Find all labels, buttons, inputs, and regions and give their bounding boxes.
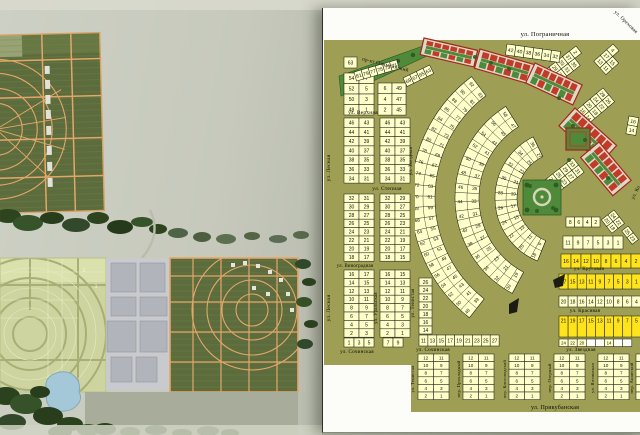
site-bottom xyxy=(0,250,318,435)
plot-cell xyxy=(636,354,640,362)
plot-number: 17 xyxy=(579,319,585,325)
plot-strip: 1715131197531 xyxy=(559,274,640,289)
plot-number: 7 xyxy=(620,371,623,376)
plot-number: 19 xyxy=(364,246,370,252)
plot-number: 11 xyxy=(588,279,593,285)
plot-cell xyxy=(614,339,623,347)
plot-number: 46 xyxy=(349,120,355,126)
plot-block: 121110987654321 xyxy=(598,354,629,400)
tree-icon xyxy=(528,184,532,188)
plot-number: 27 xyxy=(492,338,498,344)
plot-number: 8 xyxy=(617,299,620,305)
plot-number: 24 xyxy=(385,230,391,236)
plot-number: 25 xyxy=(483,338,489,344)
plot-number: 5 xyxy=(485,378,488,383)
plot-number: 4 xyxy=(384,97,387,103)
plot-number: 2 xyxy=(515,393,518,398)
street-label: ул. Ореховая xyxy=(613,9,639,35)
plot-number: 35 xyxy=(400,158,406,164)
plot-number: 28 xyxy=(385,213,391,219)
plot-number: 32 xyxy=(385,196,391,202)
plot-number: 5 xyxy=(440,378,443,383)
plot-number: 13 xyxy=(400,280,406,286)
tree-icon xyxy=(606,176,610,180)
plot-number: 3 xyxy=(365,331,368,337)
plot-number: 16 xyxy=(349,272,355,278)
plot-number: 30 xyxy=(349,204,355,210)
plot-block: 161714151213101189674523 xyxy=(344,270,374,337)
plot-strip: 1197531 xyxy=(563,236,623,249)
zone-green xyxy=(170,250,312,392)
plot-number: 10 xyxy=(593,259,599,265)
plot-number: 6 xyxy=(577,220,580,226)
street-label: пер. Анапский xyxy=(629,362,634,393)
plot-number: 17 xyxy=(400,246,406,252)
plot-number: 31 xyxy=(400,176,406,182)
street-label: ул. Тенистая xyxy=(410,365,415,393)
plot-number: 7 xyxy=(401,306,404,312)
plot-number: 23 xyxy=(400,221,406,227)
plot-number: 11 xyxy=(606,319,611,325)
plot-number: 17 xyxy=(364,272,370,278)
plot-number: 14 xyxy=(423,328,429,334)
plot-number: 7 xyxy=(576,371,579,376)
plot-number: 9 xyxy=(397,340,400,346)
plot-number: 8 xyxy=(469,371,472,376)
plot-number: 11 xyxy=(439,355,444,360)
plot-number: 4 xyxy=(560,386,563,391)
plot-strip: 111315171921232527 xyxy=(419,335,499,346)
plot-block: 32313029282726252423222120191817 xyxy=(344,194,374,261)
plot-number: 12 xyxy=(468,355,474,360)
plot-number: 22 xyxy=(570,340,575,345)
plot-number: 6 xyxy=(469,378,472,383)
plot-number: 11 xyxy=(484,355,489,360)
plot-number: 20 xyxy=(579,340,584,345)
plot-block: 63 xyxy=(344,57,357,68)
tree-icon xyxy=(554,183,559,188)
plot-number: 7 xyxy=(626,319,629,325)
plot-number: 11 xyxy=(364,297,369,303)
plot-number: 6 xyxy=(350,314,353,320)
plot-number: 4 xyxy=(625,259,628,265)
plot-number: 35 xyxy=(472,186,478,192)
plot-number: 6 xyxy=(560,378,563,383)
plot-cell xyxy=(636,362,640,370)
plot-number: 23 xyxy=(364,230,370,236)
plot-number: 5 xyxy=(401,314,404,320)
plot-number: 63 xyxy=(348,60,354,66)
plot-number: 32 xyxy=(552,54,559,61)
tree-icon xyxy=(489,61,493,65)
plot-number: 46 xyxy=(458,184,464,190)
plot-number: 9 xyxy=(620,363,623,368)
plot-number: 4 xyxy=(515,386,518,391)
plot-number: 10 xyxy=(559,363,565,368)
plot-number: 3 xyxy=(576,386,579,391)
plot-number: 19 xyxy=(511,191,517,196)
street-label: пер. Кисловодский xyxy=(502,359,507,398)
plot-number: 32 xyxy=(349,196,355,202)
plot-number: 12 xyxy=(349,289,355,295)
plot-number: 21 xyxy=(364,238,370,244)
tree-icon xyxy=(507,67,511,71)
plot-number: 16 xyxy=(385,272,391,278)
plot-number: 22 xyxy=(385,238,391,244)
plot-number: 7 xyxy=(440,371,443,376)
plot-number: 10 xyxy=(603,363,609,368)
plot-number: 47 xyxy=(396,97,402,103)
plot-number: 1 xyxy=(635,279,638,285)
plot-number: 33 xyxy=(471,199,477,204)
plot-number: 31 xyxy=(364,176,370,182)
plot-number: 19 xyxy=(570,319,576,325)
plot-number: 12 xyxy=(514,355,520,360)
plot-number: 44 xyxy=(385,130,391,136)
plot-number: 18 xyxy=(423,312,429,318)
plot-number: 13 xyxy=(579,279,585,285)
plot-number: 6 xyxy=(515,378,518,383)
plot-number: 10 xyxy=(423,363,429,368)
plot-number: 21 xyxy=(561,319,567,325)
plot-number: 7 xyxy=(608,279,611,285)
plot-number: 10 xyxy=(349,297,355,303)
cadastral-plan-map: 9290888684828078767472706866646260585654… xyxy=(323,8,640,432)
plot-number: 8 xyxy=(424,371,427,376)
plot-number: 7 xyxy=(387,340,390,346)
plot-number: 14 xyxy=(573,259,579,265)
plot-number: 34 xyxy=(349,176,355,182)
plot-block: 121110987654321 xyxy=(418,354,449,400)
site-top-left xyxy=(0,33,104,216)
plot-number: 38 xyxy=(349,158,355,164)
plot-number: 37 xyxy=(364,148,370,154)
plot-block: 4643444142394037383536333431 xyxy=(380,118,410,183)
plot-number: 13 xyxy=(430,338,436,344)
plot-number: 15 xyxy=(400,255,406,261)
plot-block: 26242220181614 xyxy=(419,278,432,334)
street-label: ул. Сочинская xyxy=(340,349,374,355)
street-label: ул. Тенистая xyxy=(411,288,416,318)
plot-block: 4643444142394037383536333431 xyxy=(344,118,374,183)
plot-number: 35 xyxy=(364,158,370,164)
plot-number: 9 xyxy=(617,319,620,325)
screenshot-root: 21 9290888684828078767472706866646260585… xyxy=(0,0,640,435)
plot-number: 37 xyxy=(400,148,406,154)
tree-icon xyxy=(583,138,587,142)
plot-number: 4 xyxy=(350,322,353,328)
plot-number: 43 xyxy=(400,120,406,126)
plot-number: 36 xyxy=(349,167,355,173)
plot-number: 3 xyxy=(485,386,488,391)
plot-number: 9 xyxy=(365,306,368,312)
plot-number: 33 xyxy=(400,167,406,173)
plot-number: 36 xyxy=(534,51,541,58)
plot-number: 3 xyxy=(401,322,404,328)
street-label: ул. Лесная xyxy=(326,154,332,181)
plot-number: 2 xyxy=(424,393,427,398)
plot-number: 5 xyxy=(365,322,368,328)
plot-number: 44 xyxy=(457,199,463,204)
plot-number: 8 xyxy=(569,220,572,226)
plot-number: 10 xyxy=(514,363,520,368)
plot-number: 8 xyxy=(515,371,518,376)
plot-number: 61 xyxy=(427,194,433,199)
plot-number: 42 xyxy=(349,139,355,145)
plot-number: 5 xyxy=(635,319,638,325)
field xyxy=(85,392,298,435)
tree-icon xyxy=(557,96,561,100)
plot-number: 40 xyxy=(385,148,391,154)
plot-number: 15 xyxy=(400,272,406,278)
plot-number: 8 xyxy=(560,371,563,376)
plot-cell xyxy=(636,384,640,392)
plot-number: 13 xyxy=(364,289,370,295)
tree-icon xyxy=(525,208,530,213)
street-label: ул. Круговая xyxy=(574,266,605,272)
plot-number: 2 xyxy=(594,220,597,226)
plot-number: 9 xyxy=(576,363,579,368)
plot-number: 4 xyxy=(586,220,589,226)
plot-number: 5 xyxy=(620,378,623,383)
tree-icon xyxy=(567,158,571,162)
plot-number: 38 xyxy=(525,50,532,57)
plot-number: 10 xyxy=(606,299,612,305)
plot-number: 11 xyxy=(400,289,405,295)
plot-number: 36 xyxy=(385,167,391,173)
plot-number: 1 xyxy=(440,393,443,398)
plot-number: 26 xyxy=(385,221,391,227)
plot-block: 121110987654321 xyxy=(636,354,640,400)
plot-number: 34 xyxy=(385,176,391,182)
plot-number: 50 xyxy=(349,97,355,103)
plot-number: 10 xyxy=(468,363,474,368)
plot-number: 46 xyxy=(385,120,391,126)
plot-number: 4 xyxy=(635,299,638,305)
plot-number: 9 xyxy=(440,363,443,368)
plot-number: 15 xyxy=(570,279,576,285)
plot-number: 25 xyxy=(400,213,406,219)
street-label: ул. Лесная xyxy=(326,294,332,321)
plot-number: 14 xyxy=(385,280,391,286)
plot-number: 41 xyxy=(400,130,406,136)
plot-number: 12 xyxy=(583,259,589,265)
street-label: пер. Прохладный xyxy=(456,360,461,397)
street-label: пер. Озерный xyxy=(547,363,552,392)
plot-number: 11 xyxy=(619,355,624,360)
plot-number: 5 xyxy=(617,279,620,285)
plot-strip: 24222014 xyxy=(559,339,632,347)
plot-number: 13 xyxy=(597,319,603,325)
street-label: ул. Уральская xyxy=(374,292,379,324)
plot-cell xyxy=(623,339,632,347)
street-label: ул. Верхняя xyxy=(348,110,378,116)
plot-number: 63 xyxy=(428,184,434,189)
plot-number: 17 xyxy=(447,338,453,344)
plot-number: 29 xyxy=(364,204,370,210)
plot-number: 52 xyxy=(349,87,355,93)
plot-number: 9 xyxy=(485,363,488,368)
plot-number: 9 xyxy=(577,240,580,246)
street-label: ул. Степная xyxy=(372,186,402,192)
plot-number: 1 xyxy=(401,331,404,337)
street-label: ул. Пограничная xyxy=(521,31,570,38)
tree-icon xyxy=(411,53,415,57)
plot-number: 43 xyxy=(364,120,370,126)
plot-number: 8 xyxy=(386,306,389,312)
plot-number: 3 xyxy=(626,279,629,285)
plan-page: 9290888684828078767472706866646260585654… xyxy=(322,8,640,433)
plot-number: 12 xyxy=(423,355,429,360)
plot-number: 1 xyxy=(576,393,579,398)
plot-number: 5 xyxy=(365,87,368,93)
plot-number: 14 xyxy=(607,340,612,345)
plot-number: 4 xyxy=(386,322,389,328)
plot-number: 18 xyxy=(570,299,576,305)
plot-number: 5 xyxy=(368,340,371,346)
plot-cell xyxy=(636,377,640,385)
plot-strip: 79 xyxy=(383,338,403,347)
plot-strip: 135 xyxy=(344,338,374,347)
plot-number: 7 xyxy=(587,240,590,246)
plot-number: 19 xyxy=(456,338,462,344)
plot-number: 3 xyxy=(365,97,368,103)
plot-number: 1 xyxy=(531,393,534,398)
plot-number: 2 xyxy=(635,259,638,265)
plot-number: 6 xyxy=(384,86,387,92)
plot-number: 1 xyxy=(348,340,351,346)
plot-number: 24 xyxy=(561,340,566,345)
zone-gray xyxy=(106,258,170,390)
plot-number: 18 xyxy=(349,255,355,261)
plot-number: 1 xyxy=(620,393,623,398)
plot-number: 40 xyxy=(349,148,355,154)
plot-number: 8 xyxy=(350,306,353,312)
street-label: ул. Виноградная xyxy=(337,264,374,269)
plot-number: 7 xyxy=(365,314,368,320)
plot-number: 1 xyxy=(617,240,620,246)
plot-number: 39 xyxy=(364,139,370,145)
plot-cell xyxy=(595,339,604,347)
plot-number: 3 xyxy=(620,386,623,391)
plot-number: 16 xyxy=(579,299,585,305)
plot-number: 42 xyxy=(507,48,514,55)
plot-number: 44 xyxy=(349,130,355,136)
plot-number: 1 xyxy=(485,393,488,398)
plot-number: 2 xyxy=(384,108,387,114)
plot-number: 17 xyxy=(364,255,370,261)
plot-block: 121110987654321 xyxy=(463,354,494,400)
plot-number: 33 xyxy=(364,167,370,173)
plot-number: 6 xyxy=(424,378,427,383)
plot-cell xyxy=(636,369,640,377)
plot-number: 4 xyxy=(469,386,472,391)
plot-number: 21 xyxy=(400,230,406,236)
plot-number: 49 xyxy=(396,86,402,92)
plot-block: 32293027282526232421221920171815 xyxy=(380,194,410,261)
tree-icon xyxy=(535,209,539,213)
plot-number: 12 xyxy=(603,355,609,360)
street-label: ул. Красивая xyxy=(570,308,601,314)
plot-number: 34 xyxy=(543,53,550,60)
street-label: ул. Ялтинская xyxy=(590,362,595,393)
plot-number: 19 xyxy=(400,238,406,244)
plot-number: 42 xyxy=(385,139,391,145)
plot-number: 14 xyxy=(588,299,594,305)
plot-number: 30 xyxy=(385,204,391,210)
plot-number: 8 xyxy=(605,259,608,265)
plot-number: 12 xyxy=(559,355,565,360)
plot-number: 9 xyxy=(401,297,404,303)
plot-number: 29 xyxy=(400,196,406,202)
plot-number: 6 xyxy=(604,378,607,383)
plot-number: 21 xyxy=(465,338,471,344)
plot-block: 121110987654321 xyxy=(554,354,585,400)
plot-number: 22 xyxy=(349,238,355,244)
plot-block: 121110987654321 xyxy=(509,354,540,400)
plot-number: 28 xyxy=(349,213,355,219)
tree-icon xyxy=(571,124,575,128)
plot-number: 15 xyxy=(588,319,594,325)
plot-number: 15 xyxy=(438,338,444,344)
plot-number: 11 xyxy=(565,240,570,246)
plot-number: 23 xyxy=(474,338,480,344)
plot-number: 26 xyxy=(349,221,355,227)
plot-number: 5 xyxy=(531,378,534,383)
plot-block: 16151413121110987654321 xyxy=(380,270,410,337)
plot-number: 18 xyxy=(385,255,391,261)
plot-number: 5 xyxy=(597,240,600,246)
plot-number: 41 xyxy=(364,130,370,136)
plot-number: 3 xyxy=(531,386,534,391)
plot-number: 12 xyxy=(385,289,391,295)
plot-number: 15 xyxy=(364,280,370,286)
plot-number: 2 xyxy=(386,331,389,337)
plot-number: 6 xyxy=(626,299,629,305)
plot-number: 3 xyxy=(358,340,361,346)
plot-number: 14 xyxy=(349,280,355,286)
plot-cell xyxy=(636,392,640,400)
plot-number: 59 xyxy=(427,205,433,210)
plot-number: 9 xyxy=(599,279,602,285)
plot-number: 5 xyxy=(576,378,579,383)
plot-number: 4 xyxy=(424,386,427,391)
street-label: ул. Сочинская xyxy=(416,347,450,353)
plot-number: 4 xyxy=(604,386,607,391)
street-label: ул. Прикубанская xyxy=(531,404,579,411)
plot-number: 11 xyxy=(530,355,535,360)
plot-number: 11 xyxy=(421,338,426,344)
plot-number: 3 xyxy=(607,240,610,246)
plot-strip: 201816141210864 xyxy=(559,296,640,307)
pond xyxy=(46,372,81,412)
plot-number: 11 xyxy=(575,355,580,360)
plot-cell xyxy=(586,339,595,347)
street-label: ул. Звездная xyxy=(566,347,596,353)
tree-icon xyxy=(473,55,477,59)
plot-number: 2 xyxy=(469,393,472,398)
plot-number: 3 xyxy=(440,386,443,391)
plot-number: 27 xyxy=(364,213,370,219)
plot-number: 54 xyxy=(349,76,355,82)
plot-strip: 8642 xyxy=(566,217,600,227)
plot-number: 8 xyxy=(604,371,607,376)
plot-block: 649447245 xyxy=(378,83,406,115)
plot-strip: 211917151311975 xyxy=(559,316,640,337)
plot-number: 24 xyxy=(349,230,355,236)
plot-number: 2 xyxy=(560,393,563,398)
plot-number: 24 xyxy=(423,288,429,294)
